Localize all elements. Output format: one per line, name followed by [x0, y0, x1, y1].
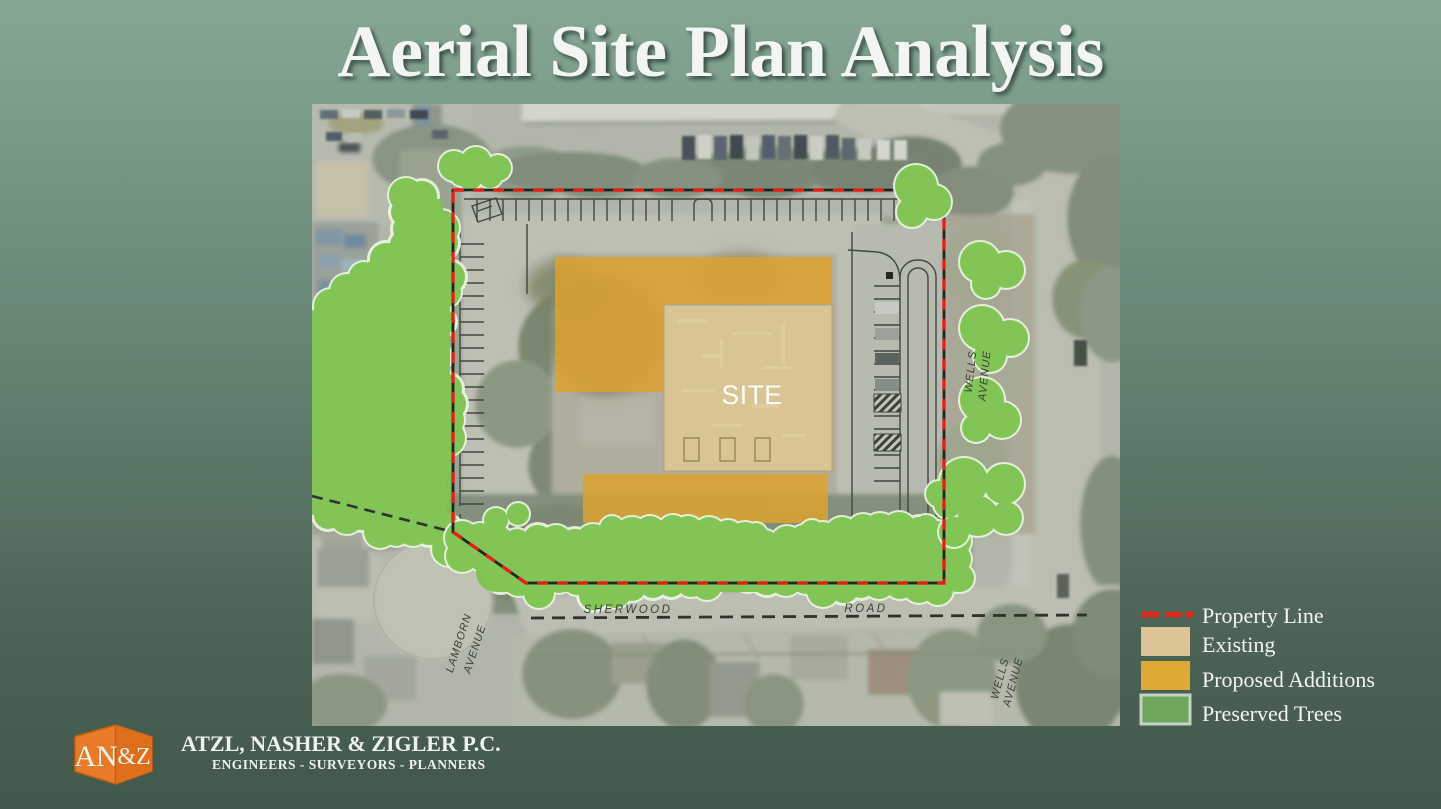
- svg-text:ROAD: ROAD: [844, 603, 887, 615]
- svg-text:SHERWOOD: SHERWOOD: [584, 604, 673, 616]
- svg-text:SITE: SITE: [722, 380, 783, 410]
- svg-text:AN: AN: [74, 740, 117, 773]
- svg-text:&Z: &Z: [117, 744, 150, 770]
